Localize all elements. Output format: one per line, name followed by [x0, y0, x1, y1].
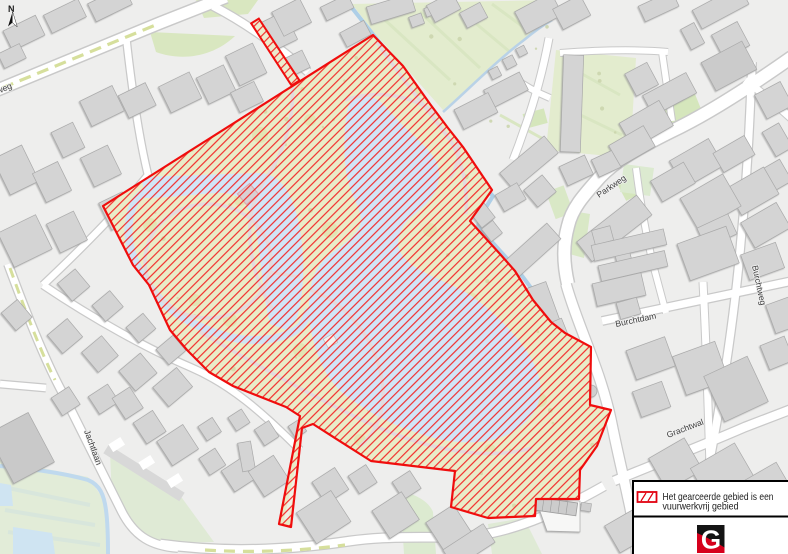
svg-text:N: N [8, 4, 15, 14]
svg-text:vuurwerkvrij gebied: vuurwerkvrij gebied [663, 501, 739, 512]
svg-text:G: G [701, 525, 721, 554]
